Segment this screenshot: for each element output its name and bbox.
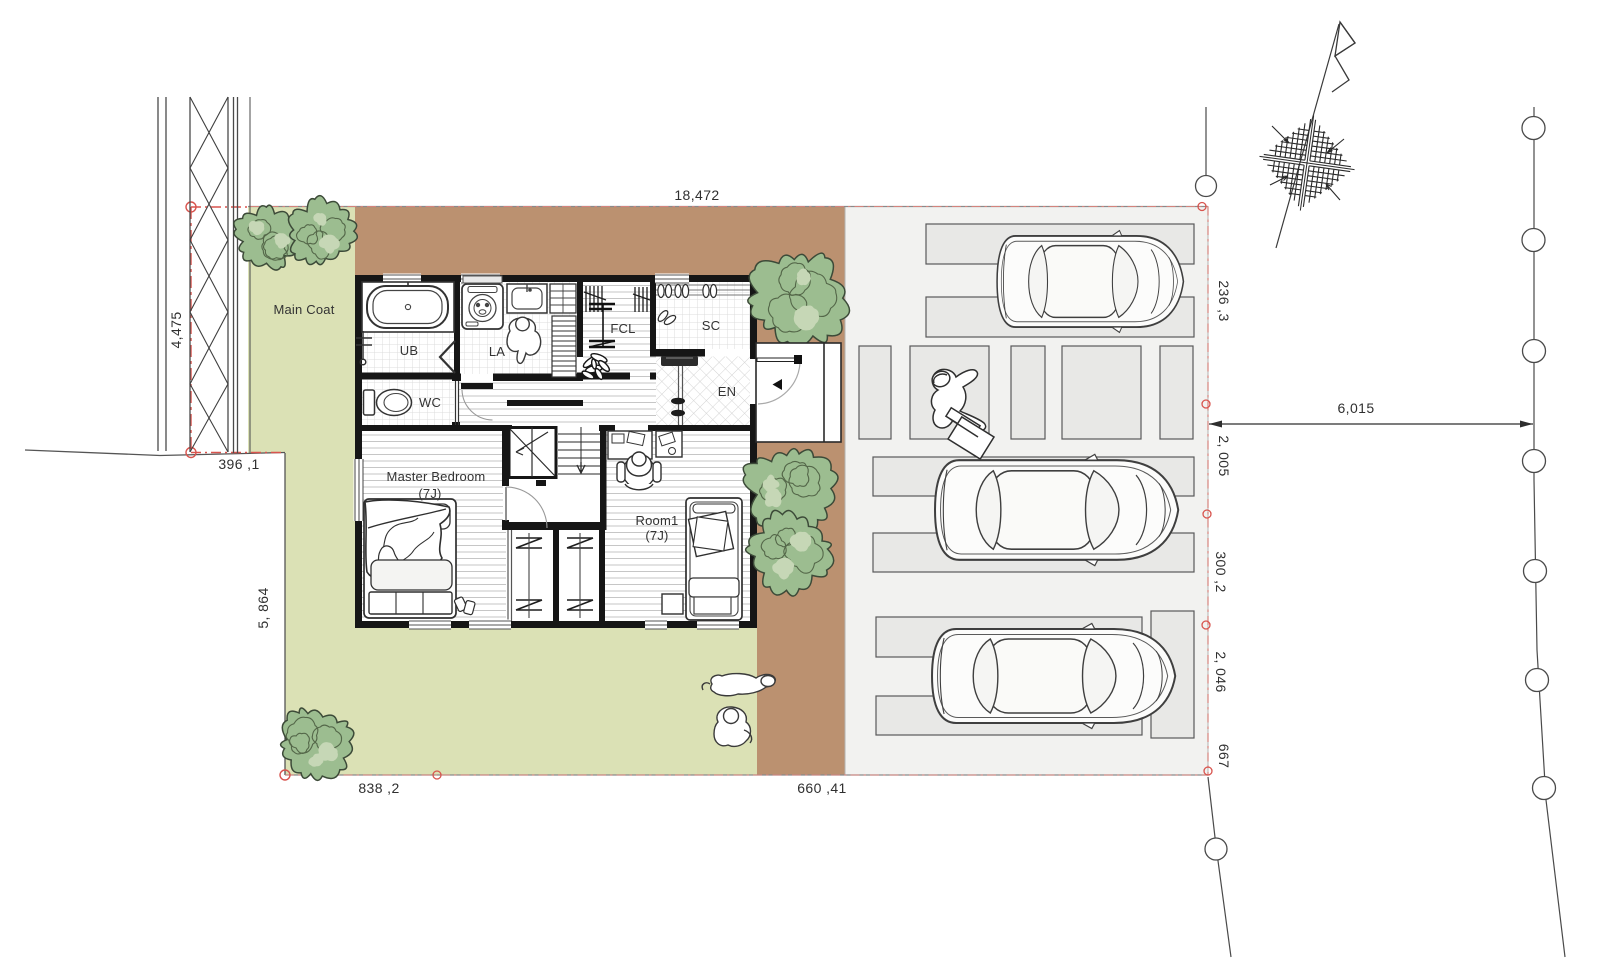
svg-text:236 ,3: 236 ,3 xyxy=(1216,280,1232,321)
svg-text:LA: LA xyxy=(489,344,505,359)
svg-text:660 ,41: 660 ,41 xyxy=(797,780,847,796)
svg-text:396 ,1: 396 ,1 xyxy=(218,456,259,472)
svg-text:FCL: FCL xyxy=(610,321,635,336)
svg-text:2, 005: 2, 005 xyxy=(1216,435,1232,476)
svg-text:5, 864: 5, 864 xyxy=(255,587,271,628)
svg-text:667: 667 xyxy=(1216,744,1232,769)
svg-text:Master Bedroom: Master Bedroom xyxy=(387,469,486,484)
svg-text:2, 046: 2, 046 xyxy=(1213,651,1229,692)
svg-text:WC: WC xyxy=(419,395,441,410)
svg-text:EN: EN xyxy=(718,384,736,399)
svg-text:4,475: 4,475 xyxy=(168,311,184,348)
svg-text:Main Coat: Main Coat xyxy=(273,302,334,317)
svg-text:UB: UB xyxy=(400,343,418,358)
svg-text:300 ,2: 300 ,2 xyxy=(1213,551,1229,592)
svg-text:(7J): (7J) xyxy=(645,528,668,543)
svg-text:SC: SC xyxy=(702,318,720,333)
svg-text:6,015: 6,015 xyxy=(1337,400,1374,416)
svg-text:(7J): (7J) xyxy=(418,486,441,501)
svg-text:18,472: 18,472 xyxy=(674,187,719,203)
svg-text:838 ,2: 838 ,2 xyxy=(358,780,399,796)
svg-text:Room1: Room1 xyxy=(636,513,679,528)
